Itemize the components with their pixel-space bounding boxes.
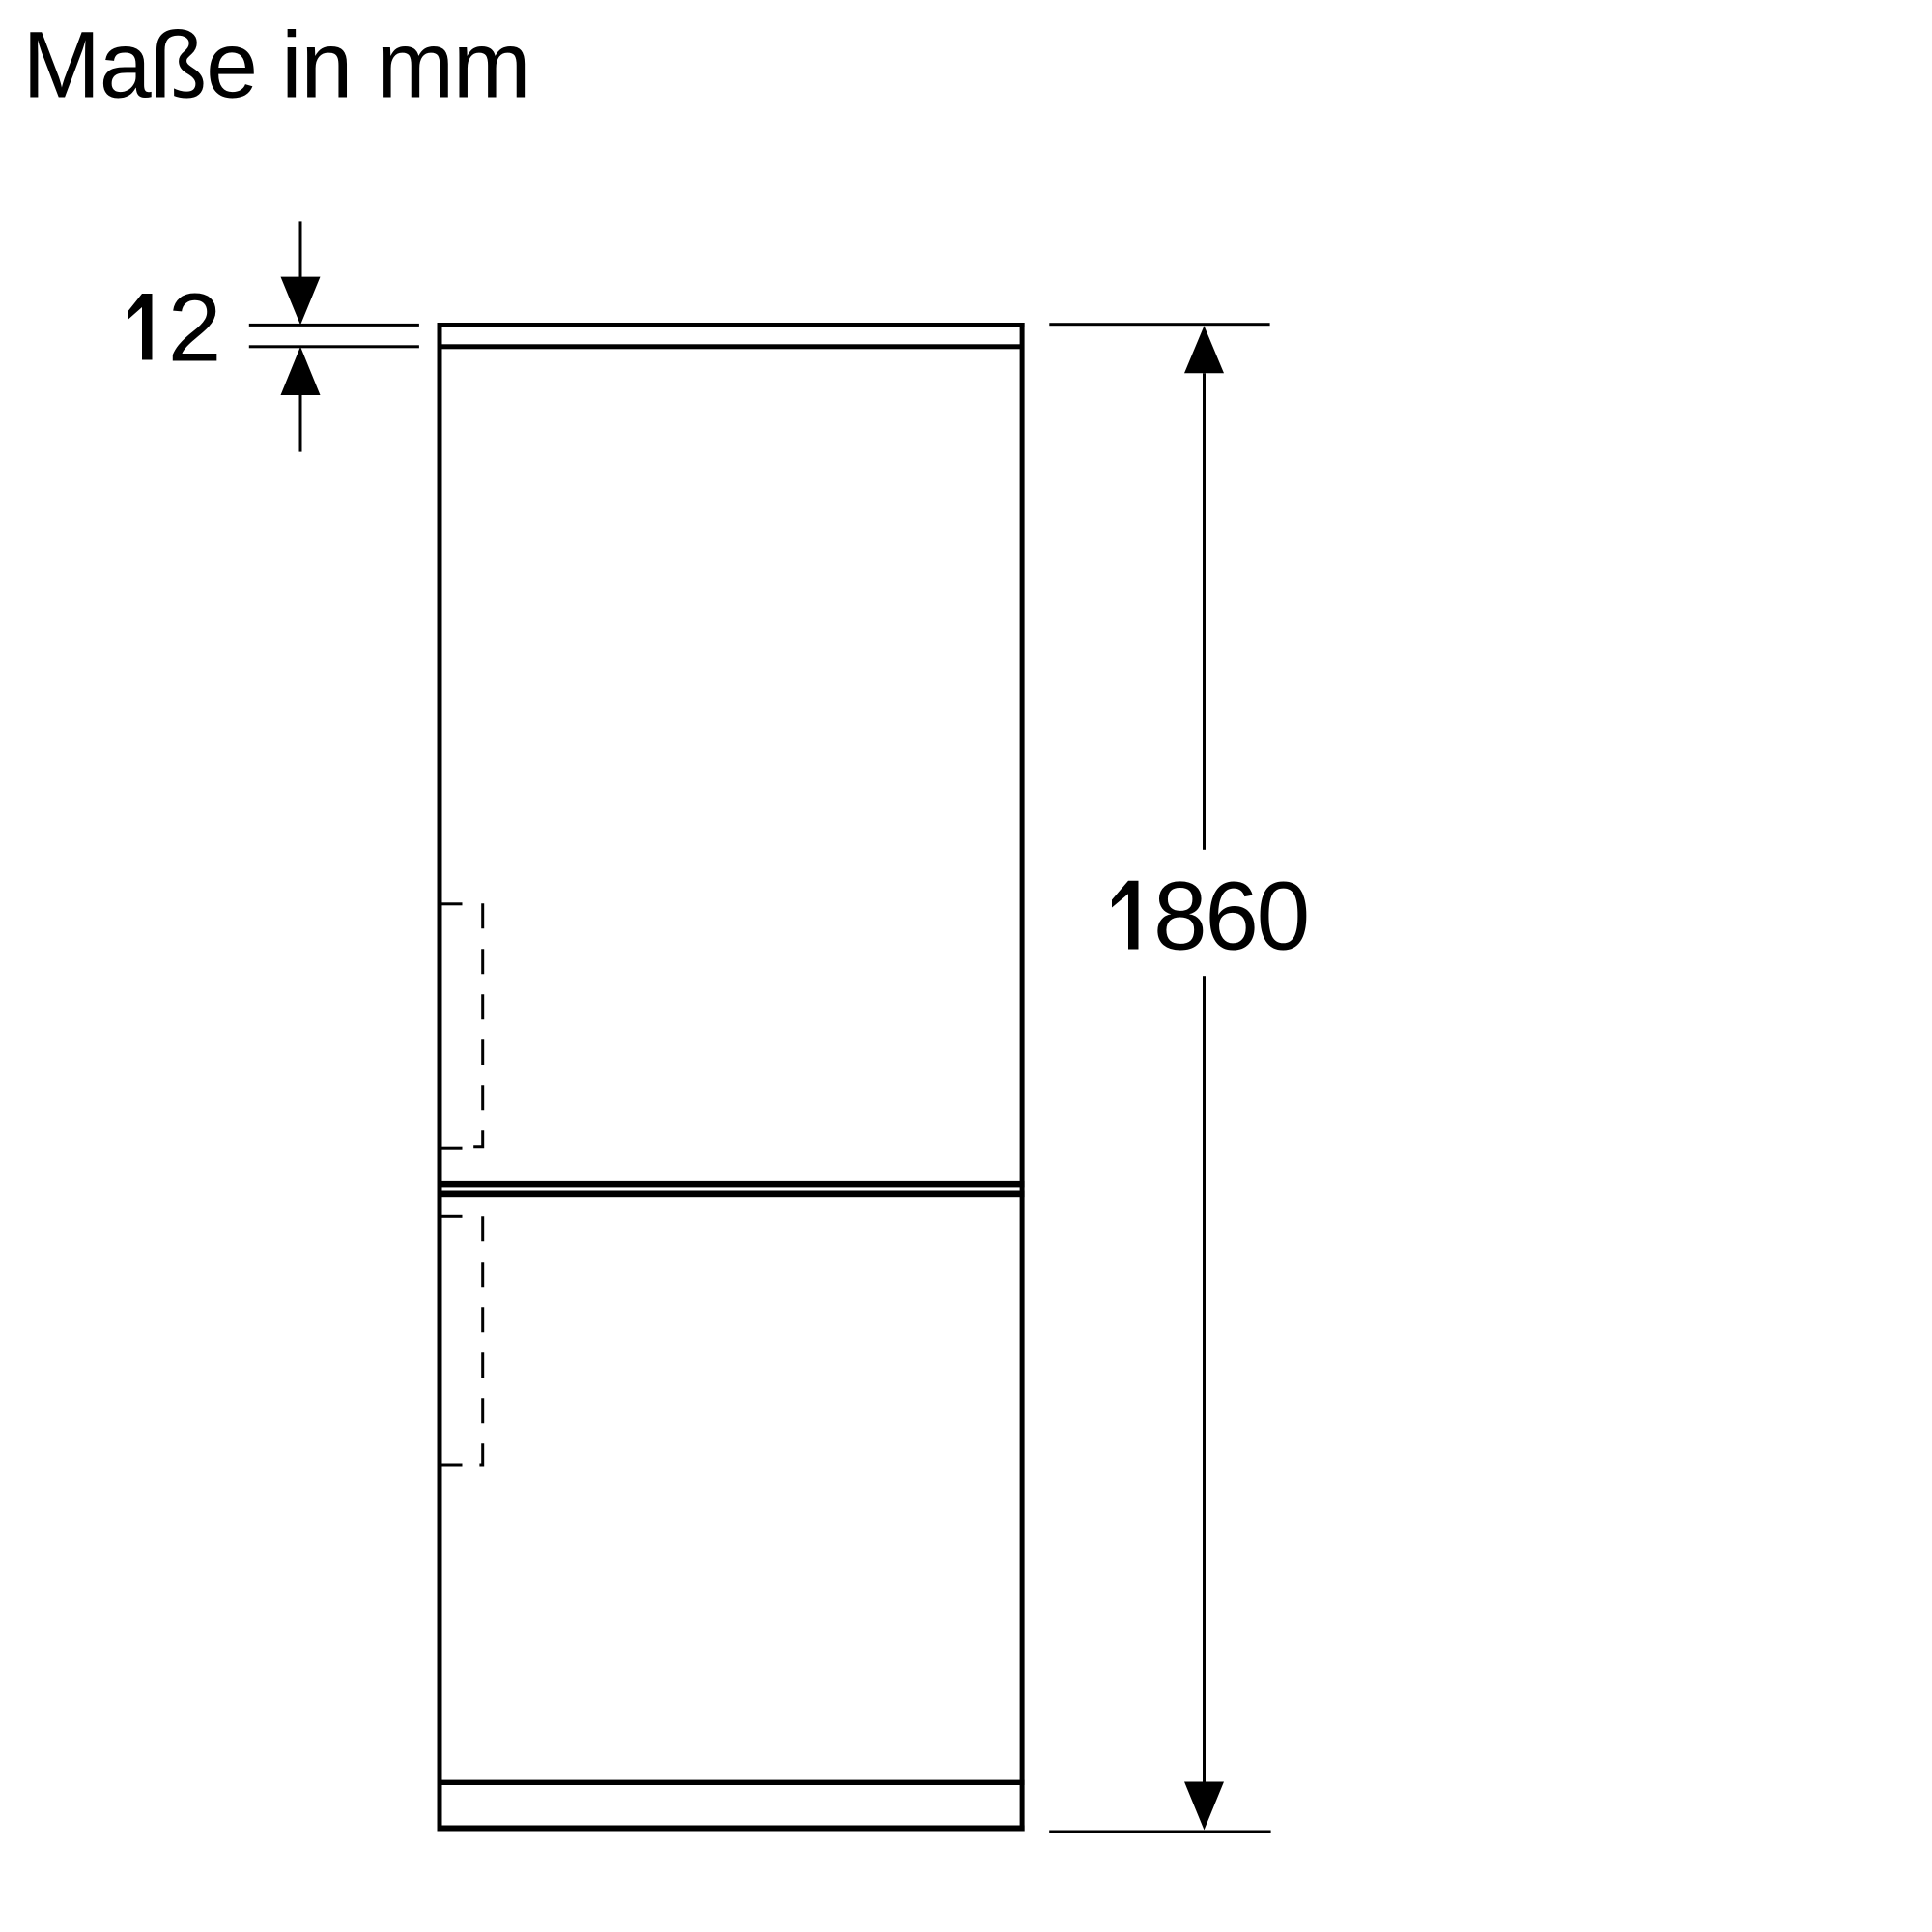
- svg-text:Maße in mm: Maße in mm: [22, 13, 529, 118]
- svg-text:860: 860: [1153, 862, 1308, 970]
- svg-text:2: 2: [168, 274, 222, 383]
